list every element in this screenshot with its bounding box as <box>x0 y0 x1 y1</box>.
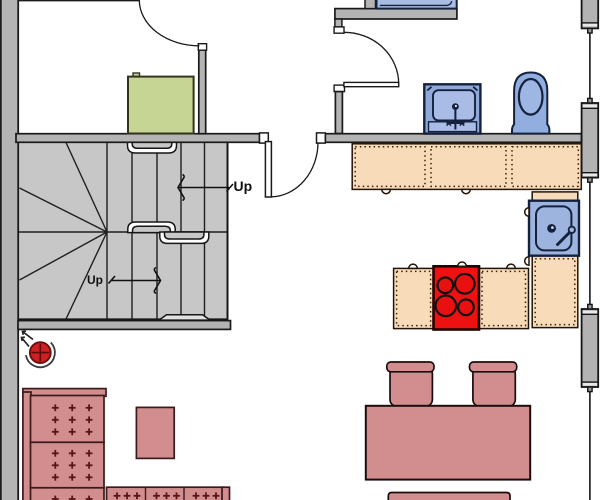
svg-text:Up: Up <box>87 273 103 287</box>
svg-text:Up: Up <box>234 178 253 194</box>
